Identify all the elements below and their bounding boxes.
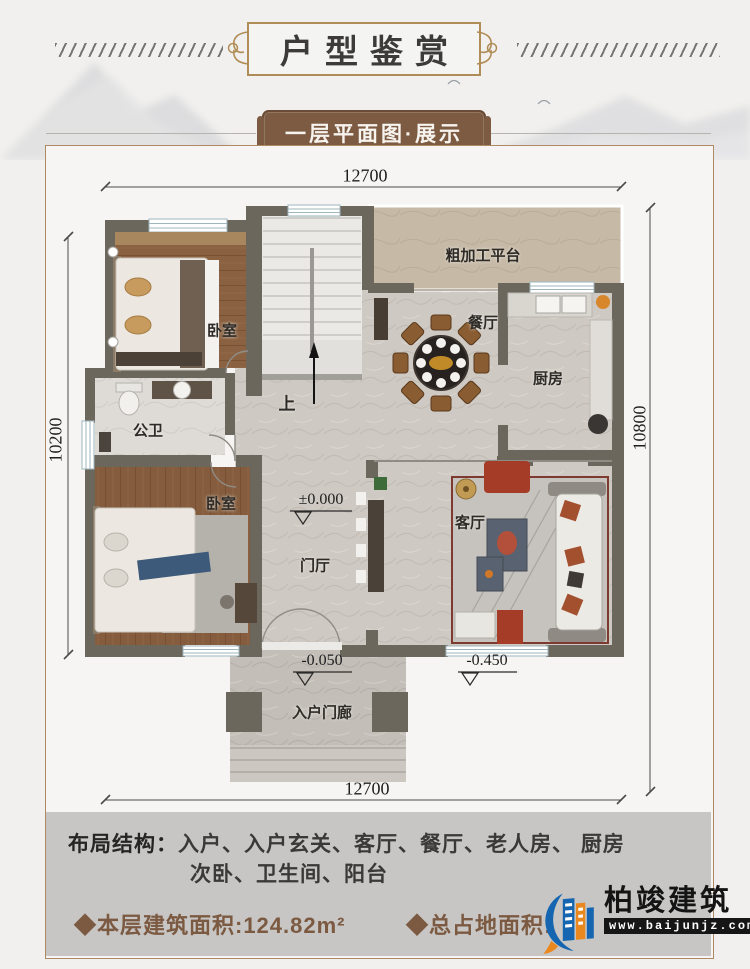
elevation-zero: ±0.000 (299, 491, 344, 509)
room-label-foyer: 门厅 (300, 555, 330, 576)
brand-logo-icon (538, 886, 600, 960)
brand-url: www.baijunjz.com (604, 918, 750, 934)
dim-left: 10200 (46, 418, 67, 463)
room-label-dining: 餐厅 (468, 312, 498, 333)
room-label-platform: 粗加工平台 (445, 245, 520, 266)
layout-line2: 次卧、卫生间、阳台 (190, 863, 388, 886)
room-label-bathroom: 公卫 (133, 420, 163, 441)
elevation-porch: -0.050 (301, 652, 342, 670)
brand-name: 柏竣建筑 (604, 886, 750, 916)
dim-right: 10800 (630, 406, 651, 451)
layout-line1: 入户、入户玄关、客厅、餐厅、老人房、 厨房 (178, 833, 625, 856)
dim-top: 12700 (343, 166, 388, 187)
brand-logo: 柏竣建筑 www.baijunjz.com (538, 886, 750, 960)
room-label-living: 客厅 (455, 512, 485, 533)
room-label-kitchen: 厨房 (533, 368, 563, 389)
room-label-porch: 入户门廊 (292, 702, 352, 723)
elevation-yard: -0.450 (466, 652, 507, 670)
dim-bottom: 12700 (345, 779, 390, 800)
room-label-bedroom-bottom: 卧室 (206, 493, 236, 514)
page: 户型鉴赏 一层平面图·展示 (0, 0, 750, 969)
room-label-bedroom-top: 卧室 (207, 320, 237, 341)
total-area-text: ◆总占地面积: (406, 908, 552, 940)
floor-area-text: ◆本层建筑面积:124.82m² (74, 908, 346, 940)
layout-label: 布局结构： (68, 833, 178, 856)
stair-up-label: 上 (279, 390, 296, 415)
